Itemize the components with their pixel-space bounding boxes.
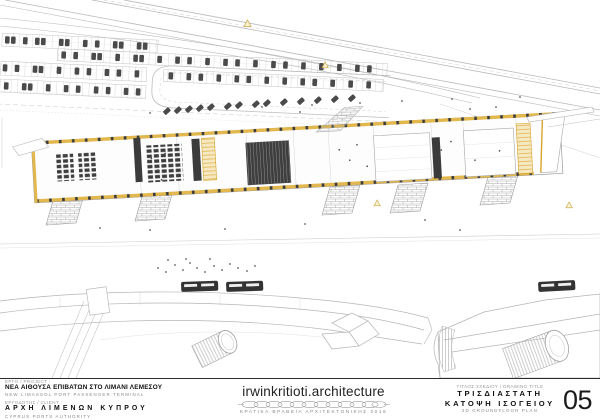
drawing-area [0, 0, 600, 378]
client-name-el: ΑΡΧΗ ΛΙΜΕΝΩΝ ΚΥΠΡΟΥ [5, 405, 203, 414]
drawing-title-el-2: ΚΑΤΟΨΗ ΙΣΟΓΕΙΟΥ [445, 399, 555, 408]
drawing-title-block: ΤΙΤΛΟΣ ΣΧΕΔΙΟΥ / DRAWING TITLE ΤΡΙΣΔΙΑΣΤ… [424, 382, 592, 418]
seating-block [78, 151, 97, 180]
buses [181, 280, 575, 292]
studio-name: irwinkritioti.architecture [242, 385, 385, 399]
drawing-title-en: 3D GROUNDFLOOR PLAN [462, 408, 538, 414]
drawing-title-el-1: ΤΡΙΣΔΙΑΣΤΑΤΗ [457, 389, 542, 398]
cruise-ship-right [322, 294, 600, 378]
award-text: ΚΡΑΤΙΚΑ ΒΡΑΒΕΙΑ ΑΡΧΙΤΕΚΤΟΝΙΚΗΣ 2016 [240, 410, 387, 415]
sheet-number: 05 [563, 387, 592, 414]
parking-lot [0, 33, 480, 132]
client-name-en: CYPRUS PORTS AUTHORITY [5, 414, 203, 420]
ribbed-roof [246, 141, 291, 185]
project-title-en: NEW LIMASSOL PORT PASSENGER TERMINAL [5, 392, 203, 398]
studio-block: irwinkritioti.architecture ΚΡΑΤΙΚΑ ΒΡΑΒΕ… [203, 382, 424, 418]
project-title-el: ΝΕΑ ΑΙΘΟΥΣΑ ΕΠΙΒΑΤΩΝ ΣΤΟ ΛΙΜΑΝΙ ΛΕΜΕΣΟΥ [5, 384, 203, 392]
drawing-sheet: ΕΡΓΟ / PROJECT : ΝΕΑ ΑΙΘΟΥΣΑ ΕΠΙΒΑΤΩΝ ΣΤ… [0, 0, 600, 420]
laurel-squiggle-ornament [238, 400, 390, 409]
seating-block [56, 153, 75, 182]
project-info-block: ΕΡΓΟ / PROJECT : ΝΕΑ ΑΙΘΟΥΣΑ ΕΠΙΒΑΤΩΝ ΣΤ… [5, 382, 203, 418]
title-block: ΕΡΓΟ / PROJECT : ΝΕΑ ΑΙΘΟΥΣΑ ΕΠΙΒΑΤΩΝ ΣΤ… [0, 378, 600, 420]
seating-block [145, 144, 184, 183]
ship-funnel [192, 327, 241, 367]
